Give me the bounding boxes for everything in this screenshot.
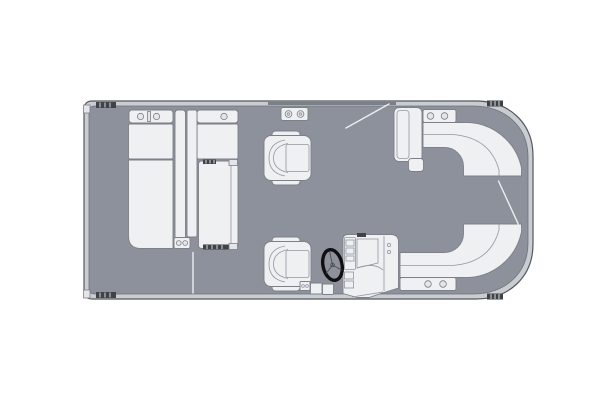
aft-backrest-left xyxy=(129,110,173,123)
captain-chair-companion xyxy=(264,131,311,185)
fitting-bottom-left xyxy=(84,290,91,298)
top-rail-segment xyxy=(268,102,396,105)
side-table-cupholders xyxy=(281,108,308,121)
cupholder xyxy=(440,281,447,288)
center-divider-b xyxy=(187,110,197,237)
console-switch xyxy=(357,233,366,237)
cleat-bottom-left xyxy=(96,292,116,298)
bow-chaise-lounger xyxy=(394,108,422,162)
fitting-top-left xyxy=(84,105,91,113)
cupholder xyxy=(137,113,143,119)
bow-chaise-footrest xyxy=(409,159,424,172)
hinge-mark-bottom xyxy=(229,244,238,250)
aft-lounge-group xyxy=(129,110,239,250)
latch-detail xyxy=(148,112,151,122)
cupholder xyxy=(441,113,448,120)
cleat-top-left xyxy=(96,102,116,108)
pontoon-floorplan xyxy=(0,0,610,407)
hinge-mark-top xyxy=(229,160,238,166)
aft-seat-left xyxy=(129,124,174,159)
aft-backrest-right xyxy=(197,110,238,123)
cupholder xyxy=(425,281,432,288)
pontoon-floorplan-canvas xyxy=(0,0,610,407)
cupholder xyxy=(297,111,304,118)
cupholder xyxy=(221,113,227,119)
cleat-top-right xyxy=(487,101,503,107)
center-divider-a xyxy=(175,110,186,249)
aft-seat-right xyxy=(197,124,238,159)
cupholder xyxy=(285,111,292,118)
cupholder xyxy=(427,113,434,120)
cupholder xyxy=(183,241,188,246)
cupholder xyxy=(176,241,181,246)
aft-lounge-left xyxy=(129,160,174,249)
cleat-bottom-right xyxy=(487,294,503,300)
cupholder xyxy=(153,113,159,119)
aft-chaise-right xyxy=(199,161,239,249)
helm-console xyxy=(343,233,399,298)
